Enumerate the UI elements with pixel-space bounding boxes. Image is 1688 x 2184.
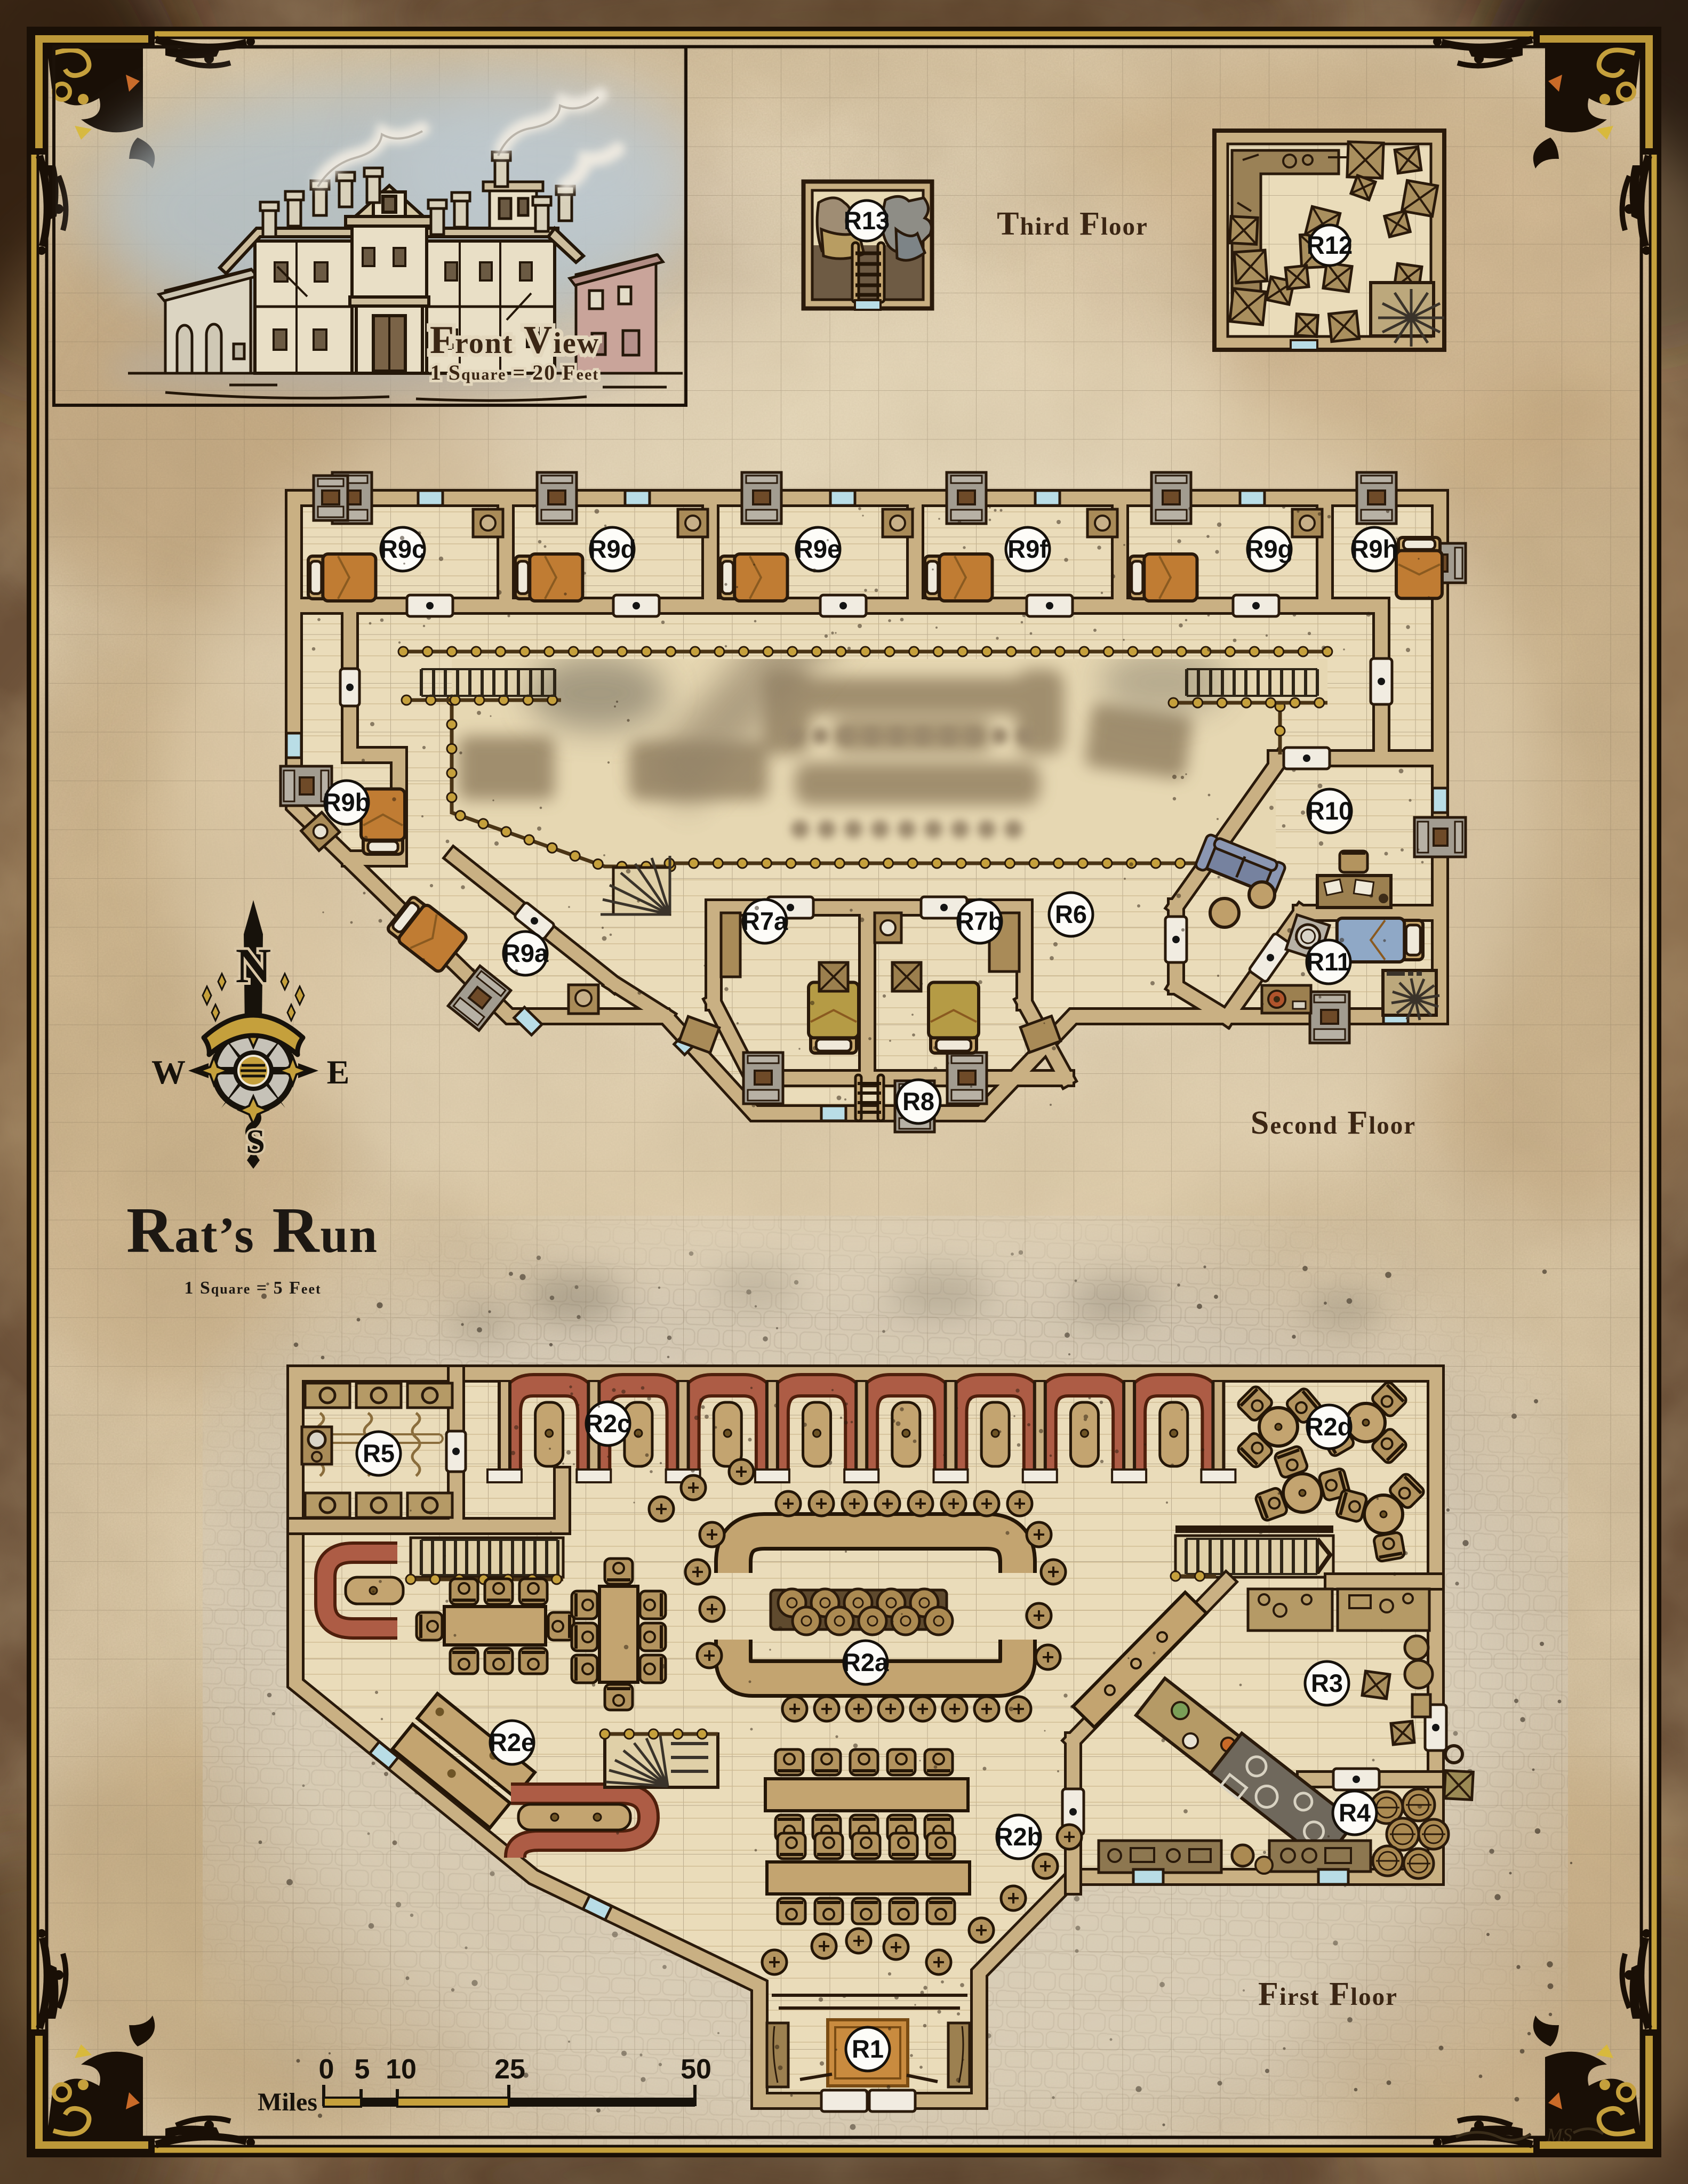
svg-text:R3: R3	[1311, 1669, 1343, 1697]
svg-text:R2a: R2a	[843, 1648, 889, 1676]
svg-text:R6: R6	[1055, 900, 1087, 928]
svg-text:R9g: R9g	[1246, 535, 1293, 563]
svg-text:10: 10	[386, 2054, 417, 2085]
svg-text:5: 5	[355, 2054, 370, 2085]
svg-text:W: W	[151, 1053, 186, 1091]
svg-text:R13: R13	[844, 206, 890, 235]
svg-text:R10: R10	[1307, 797, 1353, 825]
svg-text:R9a: R9a	[502, 939, 549, 967]
svg-text:1 Square = 5 Feet: 1 Square = 5 Feet	[184, 1278, 321, 1298]
svg-text:50: 50	[681, 2054, 711, 2085]
svg-text:R9d: R9d	[589, 535, 636, 563]
svg-text:R8: R8	[902, 1087, 934, 1115]
svg-text:R2b: R2b	[995, 1822, 1043, 1851]
svg-text:R2e: R2e	[489, 1728, 535, 1756]
svg-text:R1: R1	[852, 2035, 884, 2063]
svg-text:R12: R12	[1307, 231, 1353, 259]
svg-text:R9e: R9e	[795, 535, 841, 563]
svg-text:1 Square = 20 Feet: 1 Square = 20 Feet	[430, 360, 599, 384]
svg-text:R2c: R2c	[585, 1409, 631, 1438]
svg-text:R4: R4	[1339, 1798, 1371, 1827]
svg-text:0: 0	[319, 2054, 334, 2085]
svg-text:R5: R5	[363, 1439, 395, 1467]
svg-text:Miles: Miles	[258, 2088, 317, 2116]
svg-text:N: N	[236, 938, 271, 993]
svg-text:R9h: R9h	[1351, 535, 1398, 563]
svg-text:R9f: R9f	[1007, 535, 1048, 563]
svg-text:R7a: R7a	[742, 907, 788, 935]
svg-text:R9b: R9b	[323, 788, 371, 816]
svg-text:R2d: R2d	[1306, 1412, 1353, 1441]
svg-text:MS: MS	[1546, 2124, 1572, 2146]
svg-text:25: 25	[494, 2054, 525, 2085]
svg-text:S: S	[246, 1122, 265, 1160]
svg-text:R11: R11	[1306, 948, 1351, 976]
svg-text:E: E	[327, 1053, 350, 1091]
